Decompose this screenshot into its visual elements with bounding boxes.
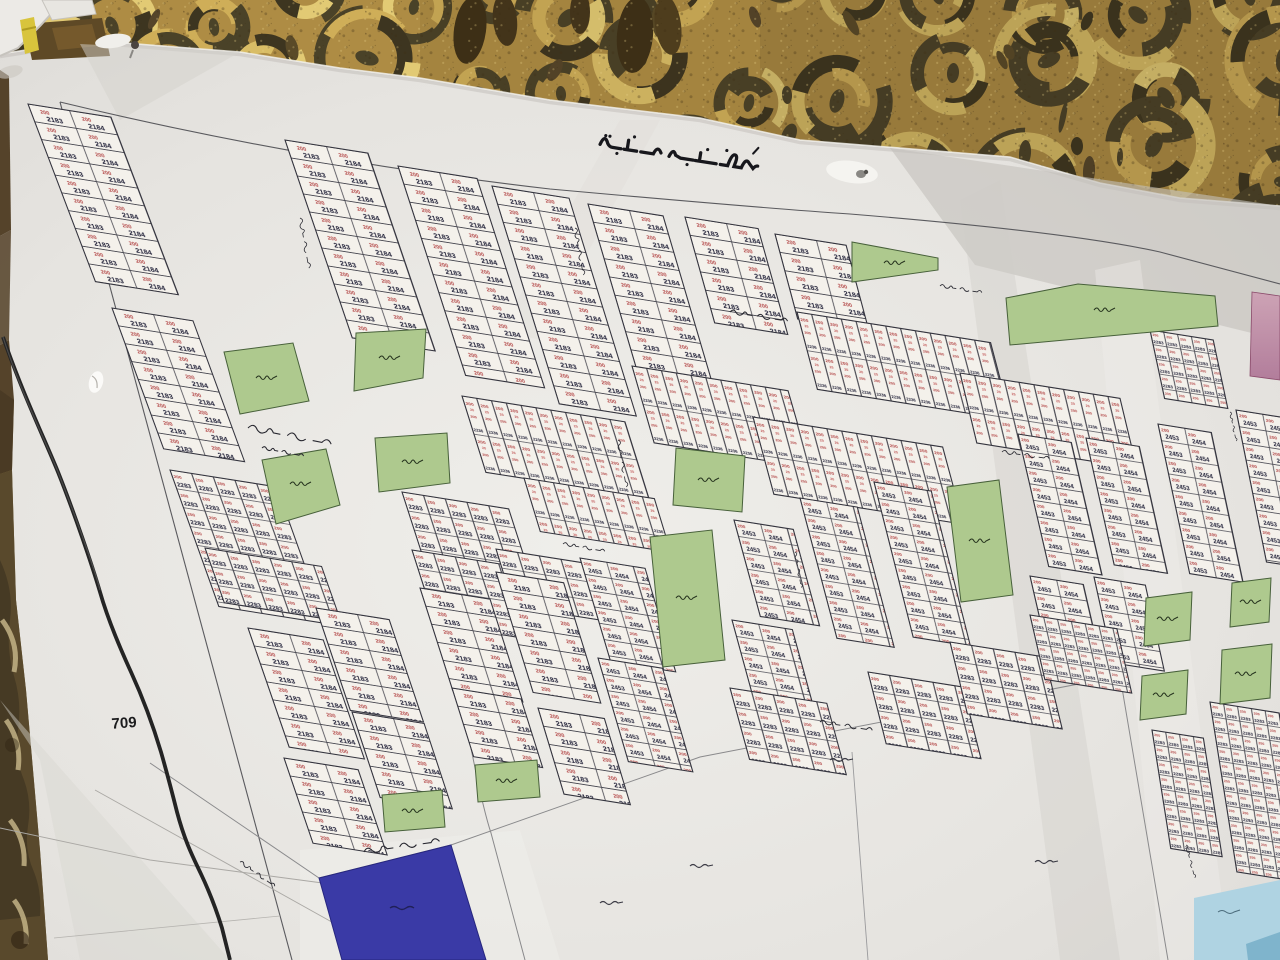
svg-text:709: 709	[111, 714, 137, 733]
